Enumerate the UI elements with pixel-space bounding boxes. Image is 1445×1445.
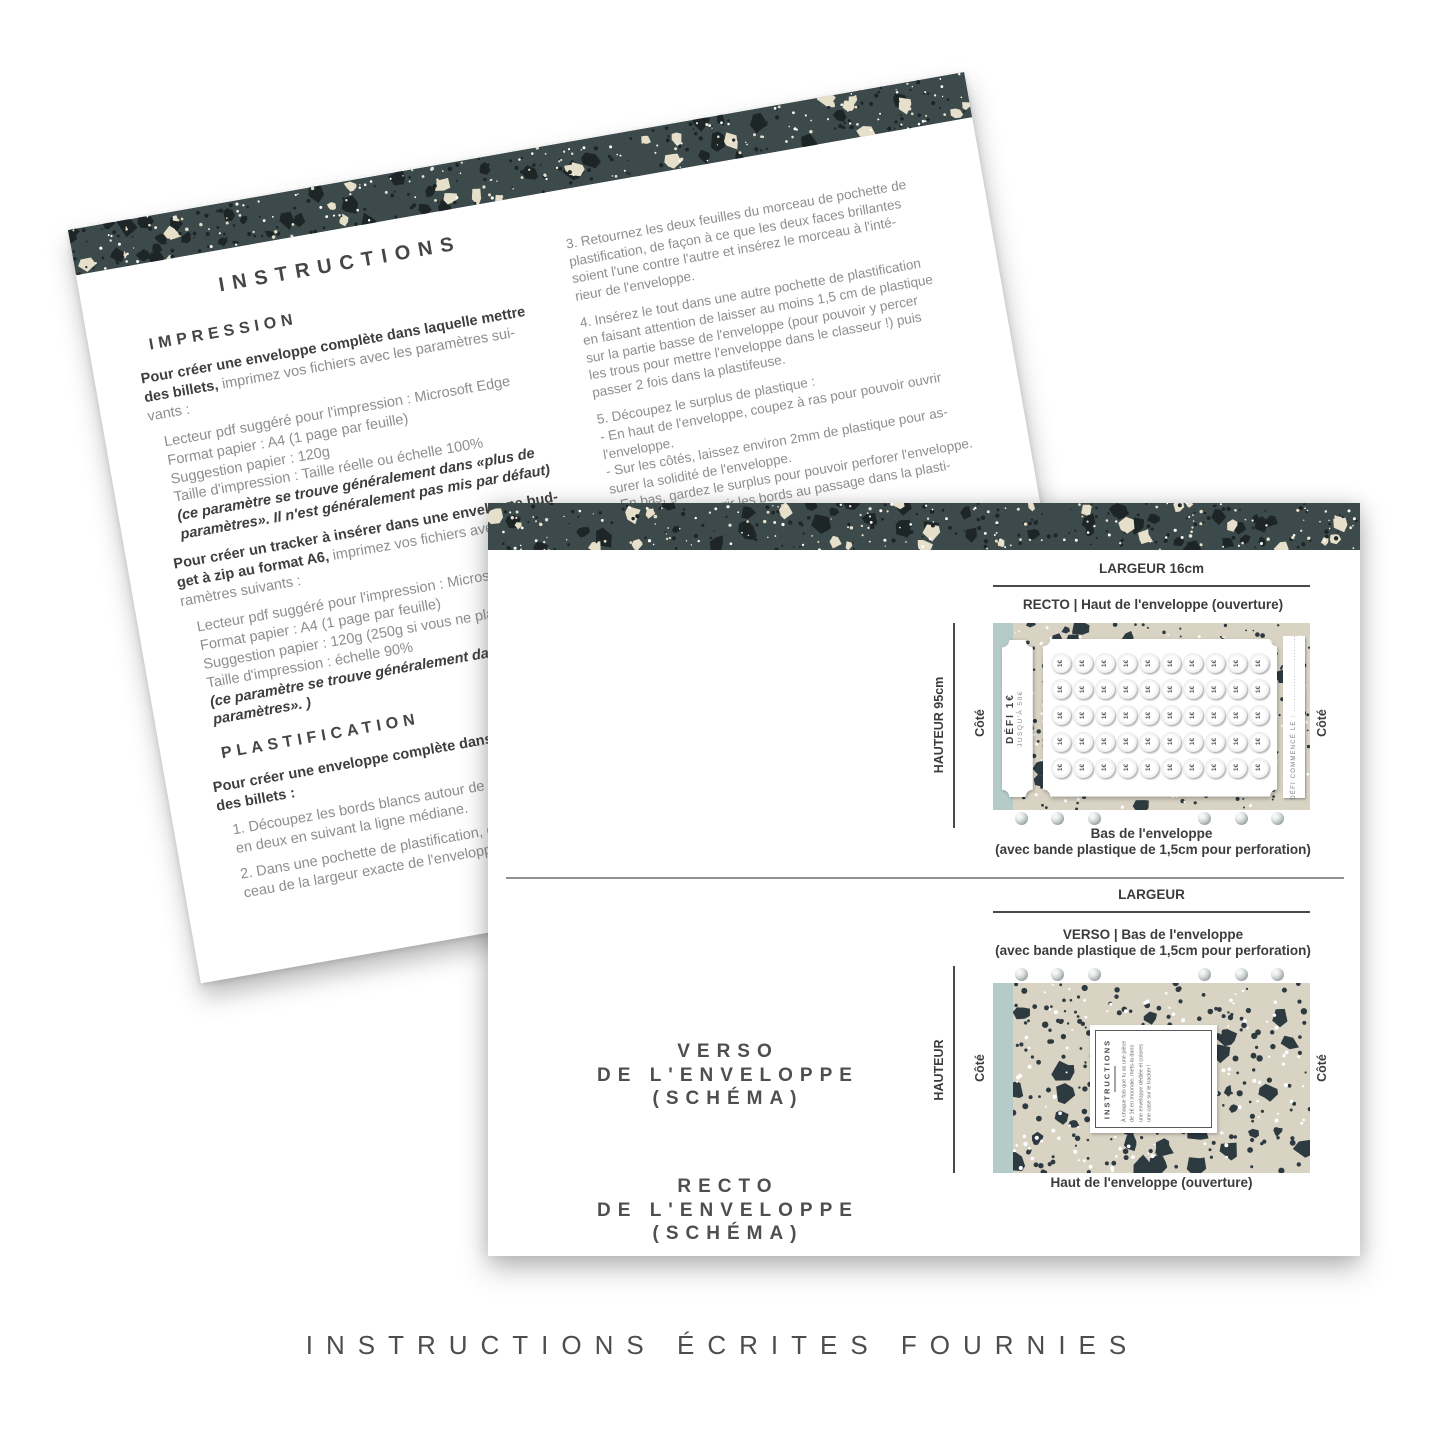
- verso-side-label-right: Côté: [1315, 1048, 1329, 1088]
- coin-slot: 1€: [1051, 653, 1071, 673]
- coin-slot: 1€: [1139, 705, 1159, 725]
- coin-slot: 1€: [1161, 705, 1181, 725]
- coin-value-label: 1€: [1189, 764, 1196, 771]
- coin-slot: 1€: [1117, 653, 1137, 673]
- recto-side-label-left: Côté: [973, 703, 987, 743]
- binder-hole: [1235, 968, 1248, 981]
- coin-slot: 1€: [1139, 758, 1159, 778]
- binder-hole: [1235, 812, 1248, 825]
- coin-value-label: 1€: [1233, 659, 1240, 666]
- defi-date-plaque: DÉFI COMMENCÉ LE : .....................…: [1283, 636, 1305, 798]
- coin-slot: 1€: [1227, 679, 1247, 699]
- coin-value-label: 1€: [1101, 764, 1108, 771]
- recto-width-label: LARGEUR 16cm: [993, 561, 1310, 576]
- coin-slot: 1€: [1249, 705, 1269, 725]
- verso-heading-line: (SCHÉMA): [508, 1087, 948, 1111]
- coin-value-label: 1€: [1255, 712, 1262, 719]
- coin-slot: 1€: [1117, 758, 1137, 778]
- coin-value-label: 1€: [1079, 659, 1086, 666]
- coin-slot: 1€: [1183, 758, 1203, 778]
- binder-hole: [1198, 812, 1211, 825]
- coin-value-label: 1€: [1145, 764, 1152, 771]
- coin-slot: 1€: [1051, 679, 1071, 699]
- coin-slot: 1€: [1095, 679, 1115, 699]
- binder-hole: [1015, 968, 1028, 981]
- recto-height-label: HAUTEUR 95cm: [932, 665, 946, 785]
- verso-heading-line: VERSO: [508, 1040, 948, 1064]
- recto-heading-line: (SCHÉMA): [508, 1222, 948, 1246]
- coin-value-label: 1€: [1057, 738, 1064, 745]
- coin-slot: 1€: [1095, 758, 1115, 778]
- coin-slot: 1€: [1073, 679, 1093, 699]
- coin-slot: 1€: [1117, 705, 1137, 725]
- mini-card-text: À chaque fois que tu as une pièce de 1€ …: [1120, 1036, 1154, 1122]
- coin-value-label: 1€: [1101, 659, 1108, 666]
- coin-value-label: 1€: [1211, 764, 1218, 771]
- defi-date-text: DÉFI COMMENCÉ LE : .....................…: [1283, 636, 1305, 798]
- coin-slot: 1€: [1227, 653, 1247, 673]
- coin-slot: 1€: [1205, 705, 1225, 725]
- coin-slot: 1€: [1183, 679, 1203, 699]
- binder-hole: [1051, 812, 1064, 825]
- coin-slot: 1€: [1139, 653, 1159, 673]
- coin-slot: 1€: [1183, 705, 1203, 725]
- coin-value-label: 1€: [1101, 738, 1108, 745]
- product-image-canvas: INSTRUCTIONS IMPRESSIONPour créer une en…: [0, 0, 1445, 1445]
- coin-value-label: 1€: [1167, 686, 1174, 693]
- coin-slot: 1€: [1051, 758, 1071, 778]
- coin-value-label: 1€: [1233, 764, 1240, 771]
- coin-slot: 1€: [1073, 705, 1093, 725]
- coin-slot: 1€: [1139, 732, 1159, 752]
- binder-hole: [1015, 812, 1028, 825]
- coin-value-label: 1€: [1255, 764, 1262, 771]
- coin-slot: 1€: [1117, 679, 1137, 699]
- verso-heading: VERSO DE L'ENVELOPPE (SCHÉMA): [508, 1040, 948, 1111]
- recto-heading: RECTO DE L'ENVELOPPE (SCHÉMA): [508, 1175, 948, 1246]
- coin-slot: 1€: [1095, 653, 1115, 673]
- coin-value-label: 1€: [1101, 712, 1108, 719]
- coin-value-label: 1€: [1079, 686, 1086, 693]
- coin-value-label: 1€: [1167, 659, 1174, 666]
- coin-slot: 1€: [1161, 653, 1181, 673]
- coin-slot: 1€: [1161, 758, 1181, 778]
- coin-value-label: 1€: [1123, 659, 1130, 666]
- recto-bottom-label-1: Bas de l'enveloppe: [993, 826, 1310, 842]
- coin-value-label: 1€: [1189, 738, 1196, 745]
- coin-slot: 1€: [1183, 653, 1203, 673]
- coin-value-label: 1€: [1167, 738, 1174, 745]
- coin-value-label: 1€: [1145, 686, 1152, 693]
- coin-value-label: 1€: [1189, 712, 1196, 719]
- coin-value-label: 1€: [1211, 659, 1218, 666]
- coin-value-label: 1€: [1079, 764, 1086, 771]
- coin-value-label: 1€: [1189, 659, 1196, 666]
- coin-value-label: 1€: [1057, 712, 1064, 719]
- section-divider: [506, 877, 1344, 879]
- coin-slot: 1€: [1249, 732, 1269, 752]
- verso-perforation-strip: [993, 966, 1310, 983]
- coin-value-label: 1€: [1145, 659, 1152, 666]
- coin-slot: 1€: [1051, 705, 1071, 725]
- coin-value-label: 1€: [1211, 712, 1218, 719]
- coin-slot: 1€: [1227, 732, 1247, 752]
- coin-value-label: 1€: [1079, 738, 1086, 745]
- recto-top-label: RECTO | Haut de l'enveloppe (ouverture): [933, 597, 1373, 613]
- coin-slot: 1€: [1073, 758, 1093, 778]
- coin-value-label: 1€: [1123, 686, 1130, 693]
- coin-value-label: 1€: [1057, 764, 1064, 771]
- width-dimension-line: [993, 585, 1310, 587]
- coin-value-label: 1€: [1123, 764, 1130, 771]
- verso-top-label-2: (avec bande plastique de 1,5cm pour perf…: [913, 943, 1393, 959]
- mini-card-rule: [1114, 1066, 1115, 1092]
- defi-plaque-title: DÉFI 1€: [1005, 640, 1017, 797]
- coin-value-label: 1€: [1211, 686, 1218, 693]
- coin-value-label: 1€: [1189, 686, 1196, 693]
- coin-slot: 1€: [1227, 758, 1247, 778]
- binder-hole: [1271, 968, 1284, 981]
- defi-label-plaque: DÉFI 1€ JUSQU'À 50€: [1002, 640, 1033, 797]
- coin-slot: 1€: [1095, 732, 1115, 752]
- verso-top-label-1: VERSO | Bas de l'enveloppe: [933, 927, 1373, 943]
- coin-value-label: 1€: [1101, 686, 1108, 693]
- verso-envelope-diagram: INSTRUCTIONS À chaque fois que tu as une…: [993, 983, 1310, 1173]
- coin-value-label: 1€: [1255, 686, 1262, 693]
- coin-grid: 1€1€1€1€1€1€1€1€1€1€1€1€1€1€1€1€1€1€1€1€…: [1051, 653, 1267, 776]
- coin-value-label: 1€: [1145, 738, 1152, 745]
- binder-hole: [1198, 968, 1211, 981]
- coin-value-label: 1€: [1255, 659, 1262, 666]
- width-dimension-line: [993, 911, 1310, 913]
- coin-value-label: 1€: [1233, 712, 1240, 719]
- coin-slot: 1€: [1205, 679, 1225, 699]
- height-dimension-line: [953, 966, 955, 1173]
- coin-slot: 1€: [1205, 732, 1225, 752]
- mini-instructions-card: INSTRUCTIONS À chaque fois que tu as une…: [1090, 1025, 1217, 1133]
- coin-value-label: 1€: [1057, 659, 1064, 666]
- mini-card-title: INSTRUCTIONS: [1102, 1039, 1111, 1119]
- coin-slot: 1€: [1161, 732, 1181, 752]
- verso-width-label: LARGEUR: [993, 887, 1310, 902]
- coin-slot: 1€: [1073, 732, 1093, 752]
- verso-side-label-left: Côté: [973, 1048, 987, 1088]
- coin-value-label: 1€: [1255, 738, 1262, 745]
- coin-slot: 1€: [1183, 732, 1203, 752]
- coin-slot: 1€: [1051, 732, 1071, 752]
- binder-hole: [1051, 968, 1064, 981]
- coin-slot: 1€: [1227, 705, 1247, 725]
- coin-value-label: 1€: [1057, 686, 1064, 693]
- recto-envelope-diagram: DÉFI 1€ JUSQU'À 50€ 1€1€1€1€1€1€1€1€1€1€…: [993, 623, 1310, 810]
- recto-heading-line: DE L'ENVELOPPE: [508, 1199, 948, 1223]
- binder-hole: [1088, 812, 1101, 825]
- coin-slot: 1€: [1161, 679, 1181, 699]
- recto-bottom-label-2: (avec bande plastique de 1,5cm pour perf…: [913, 842, 1393, 858]
- coin-value-label: 1€: [1079, 712, 1086, 719]
- caption-text: INSTRUCTIONS ÉCRITES FOURNIES: [0, 1330, 1445, 1361]
- coin-slot: 1€: [1073, 653, 1093, 673]
- defi-plaque-subtitle: JUSQU'À 50€: [1017, 640, 1025, 797]
- verso-height-label: HAUTEUR: [932, 1010, 946, 1130]
- recto-perforation-strip: [993, 810, 1310, 827]
- coin-value-label: 1€: [1211, 738, 1218, 745]
- coin-slot: 1€: [1205, 653, 1225, 673]
- coin-value-label: 1€: [1233, 738, 1240, 745]
- coin-slot: 1€: [1249, 679, 1269, 699]
- coin-slot: 1€: [1139, 679, 1159, 699]
- coin-value-label: 1€: [1167, 764, 1174, 771]
- recto-side-label-right: Côté: [1315, 703, 1329, 743]
- coin-slot: 1€: [1117, 732, 1137, 752]
- binder-hole: [1088, 968, 1101, 981]
- coin-slot: 1€: [1095, 705, 1115, 725]
- binder-hole: [1271, 812, 1284, 825]
- coin-value-label: 1€: [1233, 686, 1240, 693]
- coin-slot: 1€: [1249, 758, 1269, 778]
- coin-value-label: 1€: [1167, 712, 1174, 719]
- front-schema-sheet: RECTO DE L'ENVELOPPE (SCHÉMA) LARGEUR 16…: [488, 503, 1360, 1256]
- coin-value-label: 1€: [1145, 712, 1152, 719]
- envelope-zip-strip: [993, 983, 1013, 1173]
- coin-slot: 1€: [1205, 758, 1225, 778]
- verso-bottom-label: Haut de l'enveloppe (ouverture): [993, 1175, 1310, 1191]
- terrazzo-band: [488, 503, 1360, 550]
- coin-tracker-card: 1€1€1€1€1€1€1€1€1€1€1€1€1€1€1€1€1€1€1€1€…: [1043, 639, 1277, 797]
- coin-slot: 1€: [1249, 653, 1269, 673]
- height-dimension-line: [953, 623, 955, 828]
- coin-value-label: 1€: [1123, 712, 1130, 719]
- verso-heading-line: DE L'ENVELOPPE: [508, 1064, 948, 1088]
- back-right-column-lines: 3. Retournez les deux feuilles du morcea…: [565, 168, 1004, 550]
- coin-value-label: 1€: [1123, 738, 1130, 745]
- recto-heading-line: RECTO: [508, 1175, 948, 1199]
